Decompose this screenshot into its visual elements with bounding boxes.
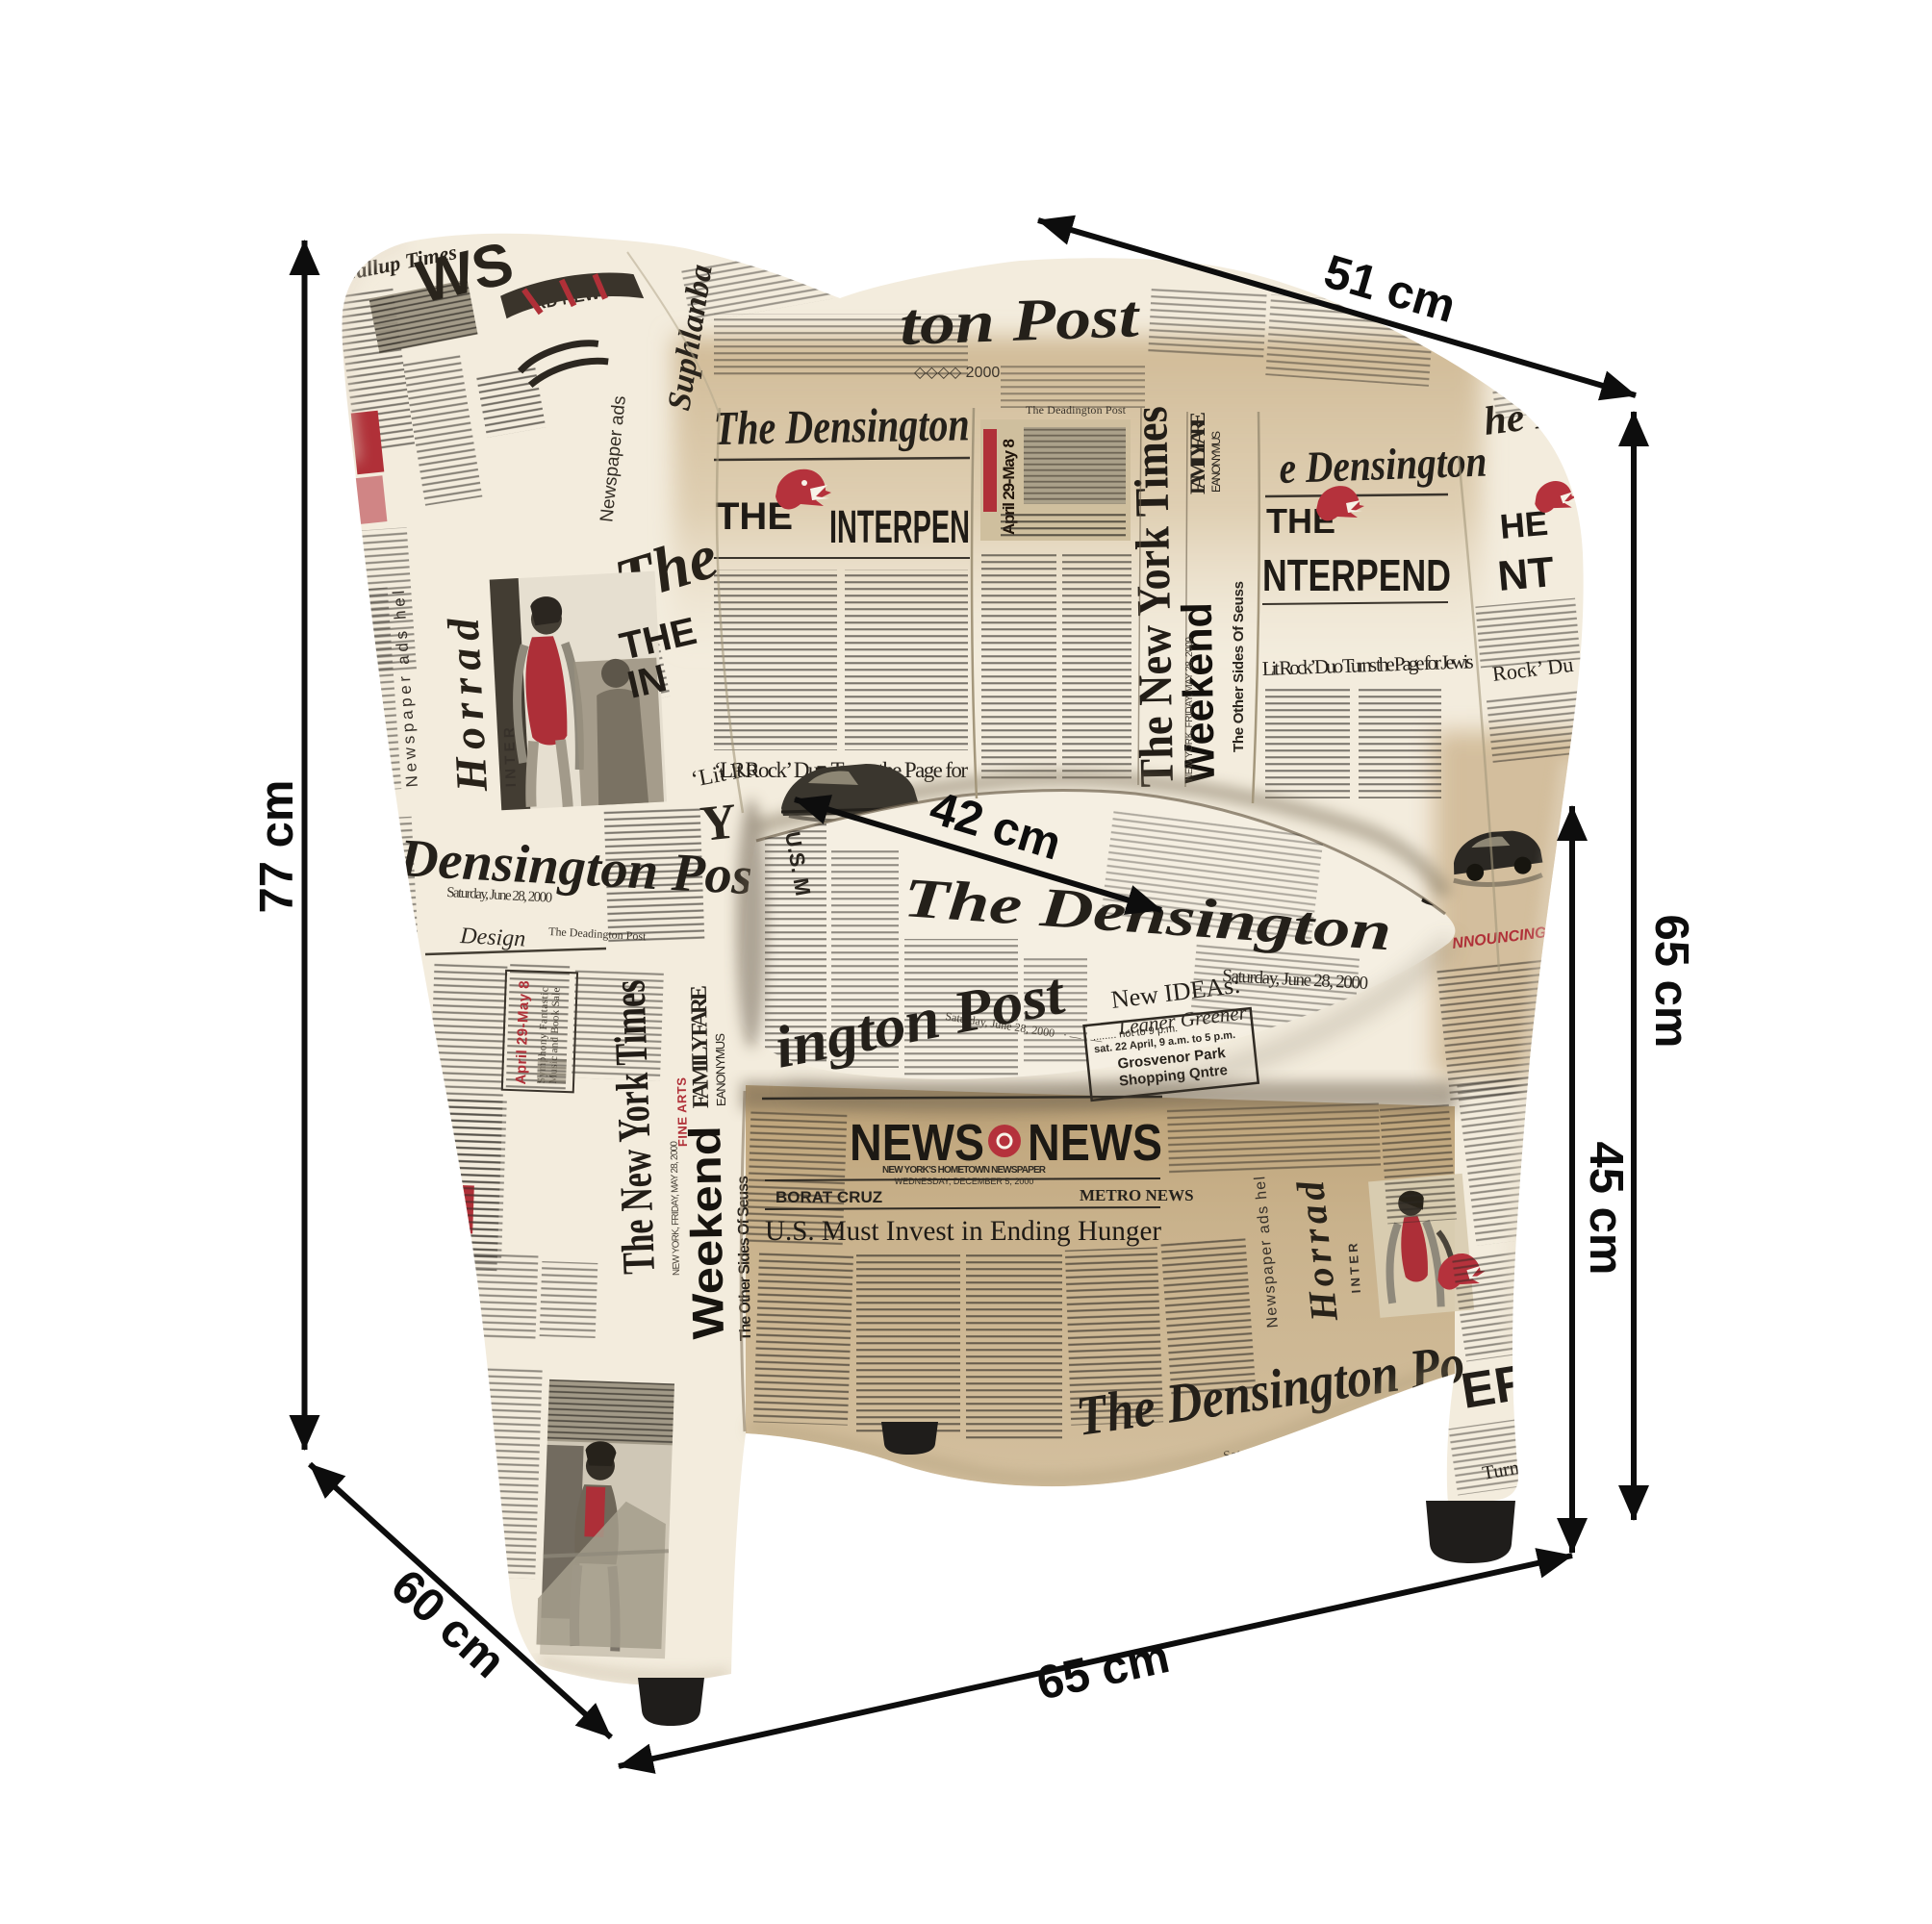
svg-text:NEW YORK, FRIDAY, MAY 28, 2000: NEW YORK, FRIDAY, MAY 28, 2000 (1184, 637, 1195, 781)
svg-text:◇◇◇◇ 2000: ◇◇◇◇ 2000 (914, 365, 1000, 381)
svg-text:NT: NT (1496, 548, 1557, 600)
svg-text:FAMILY FARE: FAMILY FARE (1185, 412, 1209, 494)
svg-text:The Densington: The Densington (713, 396, 970, 455)
svg-text:METRO NEWS: METRO NEWS (1080, 1186, 1194, 1204)
svg-text:NEWS: NEWS (850, 1114, 984, 1172)
svg-text:45 cm: 45 cm (1580, 1142, 1632, 1276)
svg-text:U.S. Must Invest in Ending Hun: U.S. Must Invest in Ending Hunger (765, 1215, 1161, 1247)
svg-text:EANONYMUS: EANONYMUS (1209, 431, 1223, 493)
svg-text:INTERPEN: INTERPEN (829, 502, 970, 553)
svg-text:NEWS: NEWS (1028, 1114, 1162, 1172)
svg-text:NEW YORK’S HOMETOWN NEWSPAPER: NEW YORK’S HOMETOWN NEWSPAPER (882, 1165, 1047, 1176)
svg-text:The Other Sides Of Seuss: The Other Sides Of Seuss (1231, 581, 1247, 752)
svg-text:Design: Design (459, 924, 526, 952)
svg-text:Weekend: Weekend (1174, 602, 1224, 784)
svg-text:WEDNESDAY, DECEMBER 5, 2000: WEDNESDAY, DECEMBER 5, 2000 (895, 1177, 1034, 1186)
svg-text:NTERPEND: NTERPEND (1262, 550, 1451, 600)
svg-text:The New York Times: The New York Times (603, 979, 665, 1276)
svg-text:ton Post: ton Post (899, 284, 1141, 358)
svg-text:77 cm: 77 cm (251, 780, 303, 914)
svg-text:The New York Times: The New York Times (1123, 406, 1183, 788)
svg-text:FAMILY FARE: FAMILY FARE (687, 985, 714, 1108)
svg-text:FINE ARTS: FINE ARTS (674, 1077, 690, 1148)
svg-text:BORAT CRUZ: BORAT CRUZ (775, 1188, 882, 1206)
svg-text:65 cm: 65 cm (1645, 915, 1697, 1049)
svg-text:INTER: INTER (501, 727, 520, 788)
svg-text:e Densington: e Densington (1279, 436, 1488, 493)
svg-text:Weekend: Weekend (679, 1126, 733, 1340)
svg-text:EANONYMUS: EANONYMUS (713, 1033, 728, 1107)
